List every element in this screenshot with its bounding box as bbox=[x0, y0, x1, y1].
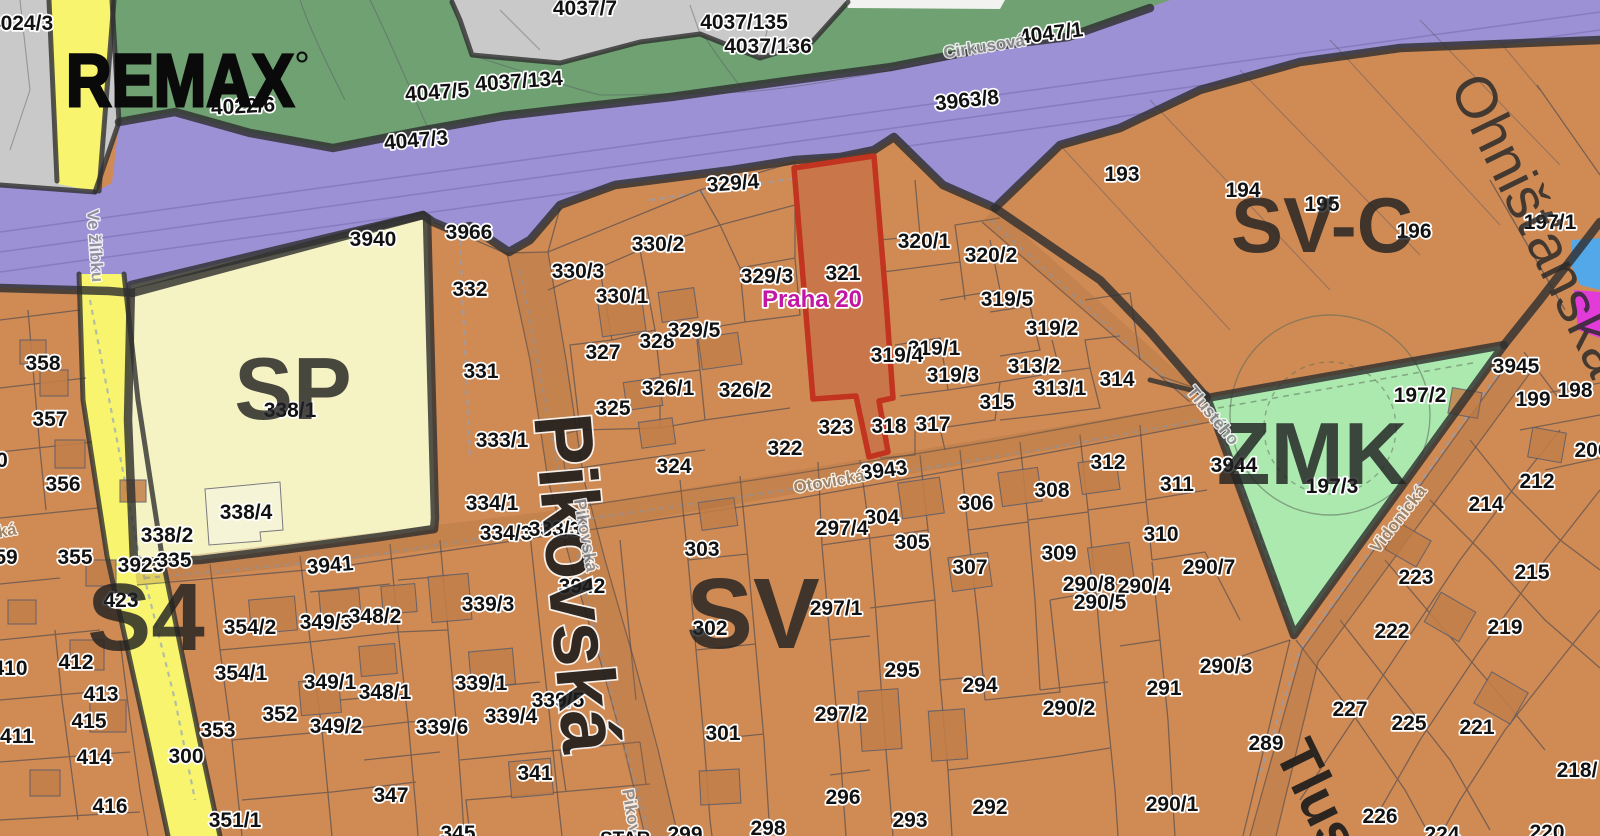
svg-text:339/1: 339/1 bbox=[455, 672, 508, 695]
svg-text:212: 212 bbox=[1519, 470, 1554, 493]
svg-text:329/5: 329/5 bbox=[668, 319, 721, 342]
svg-text:347: 347 bbox=[373, 784, 408, 807]
svg-text:410: 410 bbox=[0, 657, 28, 680]
svg-text:323: 323 bbox=[818, 416, 853, 439]
svg-text:SP: SP bbox=[234, 339, 351, 438]
svg-text:320/1: 320/1 bbox=[898, 230, 951, 253]
svg-text:353: 353 bbox=[200, 719, 235, 742]
svg-text:297/4: 297/4 bbox=[816, 517, 869, 540]
svg-text:315: 315 bbox=[979, 391, 1014, 414]
svg-text:311: 311 bbox=[1160, 473, 1194, 496]
svg-text:REMAX: REMAX bbox=[66, 39, 294, 122]
svg-text:330/1: 330/1 bbox=[596, 285, 649, 308]
svg-text:334/3: 334/3 bbox=[480, 522, 533, 545]
svg-text:330/2: 330/2 bbox=[632, 233, 685, 256]
svg-text:339/3: 339/3 bbox=[462, 593, 515, 616]
svg-text:215: 215 bbox=[1514, 561, 1549, 584]
svg-text:308: 308 bbox=[1034, 479, 1069, 502]
svg-text:227: 227 bbox=[1332, 698, 1367, 721]
svg-text:341: 341 bbox=[517, 762, 552, 785]
svg-text:219: 219 bbox=[1487, 616, 1522, 639]
svg-text:332: 332 bbox=[452, 278, 487, 301]
svg-text:222: 222 bbox=[1374, 620, 1409, 643]
svg-text:290/5: 290/5 bbox=[1074, 591, 1127, 614]
svg-text:348/1: 348/1 bbox=[359, 681, 412, 704]
svg-text:S4: S4 bbox=[87, 564, 204, 671]
svg-text:330/3: 330/3 bbox=[552, 260, 605, 283]
svg-text:199: 199 bbox=[1515, 388, 1550, 411]
svg-text:223: 223 bbox=[1398, 566, 1433, 589]
svg-text:313/1: 313/1 bbox=[1034, 377, 1087, 400]
svg-text:298: 298 bbox=[750, 817, 785, 836]
svg-text:305: 305 bbox=[894, 531, 929, 554]
svg-text:193: 193 bbox=[1104, 163, 1139, 186]
svg-text:304: 304 bbox=[864, 506, 899, 529]
svg-text:313/2: 313/2 bbox=[1008, 355, 1061, 378]
svg-text:4037/136: 4037/136 bbox=[724, 35, 812, 58]
svg-text:300: 300 bbox=[168, 745, 203, 768]
svg-text:Praha 20: Praha 20 bbox=[762, 286, 862, 313]
svg-text:327: 327 bbox=[585, 341, 620, 364]
svg-text:354/1: 354/1 bbox=[215, 662, 268, 685]
svg-text:3941: 3941 bbox=[306, 552, 355, 579]
svg-text:4037/7: 4037/7 bbox=[553, 0, 617, 20]
svg-text:4037/135: 4037/135 bbox=[700, 11, 788, 34]
svg-text:220: 220 bbox=[1529, 821, 1564, 836]
svg-text:357: 357 bbox=[32, 408, 67, 431]
svg-text:309: 309 bbox=[1041, 542, 1076, 565]
svg-text:411: 411 bbox=[0, 725, 34, 748]
svg-text:291: 291 bbox=[1146, 677, 1181, 700]
svg-text:317: 317 bbox=[915, 413, 950, 436]
svg-text:218/: 218/ bbox=[1557, 759, 1598, 782]
svg-text:349/2: 349/2 bbox=[310, 715, 363, 738]
svg-text:314: 314 bbox=[1099, 368, 1134, 391]
svg-text:297/2: 297/2 bbox=[815, 703, 868, 726]
svg-text:ZMK: ZMK bbox=[1217, 404, 1408, 503]
svg-text:351/1: 351/1 bbox=[209, 809, 262, 832]
svg-text:321: 321 bbox=[825, 262, 860, 285]
svg-text:3945: 3945 bbox=[1493, 355, 1540, 378]
svg-text:415: 415 bbox=[71, 710, 106, 733]
svg-text:414: 414 bbox=[76, 746, 111, 769]
svg-text:292: 292 bbox=[972, 796, 1007, 819]
svg-text:290/2: 290/2 bbox=[1043, 697, 1096, 720]
svg-text:322: 322 bbox=[767, 437, 802, 460]
svg-text:331: 331 bbox=[463, 360, 498, 383]
svg-text:413: 413 bbox=[83, 683, 118, 706]
svg-text:290/3: 290/3 bbox=[1200, 655, 1253, 678]
svg-text:295: 295 bbox=[884, 659, 919, 682]
svg-text:319/3: 319/3 bbox=[927, 364, 980, 387]
svg-text:339/4: 339/4 bbox=[485, 705, 538, 728]
svg-text:329/3: 329/3 bbox=[741, 265, 794, 288]
svg-text:310: 310 bbox=[1143, 523, 1178, 546]
svg-text:338/2: 338/2 bbox=[141, 524, 194, 547]
svg-text:349/1: 349/1 bbox=[304, 671, 357, 694]
svg-text:59: 59 bbox=[0, 546, 18, 569]
svg-text:320/2: 320/2 bbox=[965, 244, 1018, 267]
svg-text:339/6: 339/6 bbox=[416, 716, 469, 739]
svg-text:290/1: 290/1 bbox=[1146, 793, 1199, 816]
svg-text:224: 224 bbox=[1424, 823, 1459, 836]
svg-text:326/1: 326/1 bbox=[642, 377, 695, 400]
svg-text:338/4: 338/4 bbox=[220, 501, 273, 524]
svg-text:354/2: 354/2 bbox=[224, 616, 277, 639]
svg-text:326/2: 326/2 bbox=[719, 379, 772, 402]
svg-text:319/5: 319/5 bbox=[981, 288, 1034, 311]
svg-text:319/2: 319/2 bbox=[1026, 317, 1079, 340]
svg-text:312: 312 bbox=[1090, 451, 1125, 474]
svg-text:334/1: 334/1 bbox=[466, 492, 519, 515]
svg-text:324: 324 bbox=[656, 455, 691, 478]
svg-text:352: 352 bbox=[262, 703, 297, 726]
svg-text:329/4: 329/4 bbox=[706, 170, 760, 197]
svg-text:356: 356 bbox=[45, 473, 80, 496]
svg-text:348/2: 348/2 bbox=[349, 605, 402, 628]
svg-text:293: 293 bbox=[892, 809, 927, 832]
svg-text:307: 307 bbox=[952, 556, 987, 579]
svg-text:221: 221 bbox=[1459, 716, 1494, 739]
svg-text:345: 345 bbox=[440, 822, 475, 836]
svg-text:301: 301 bbox=[705, 722, 740, 745]
svg-text:349/3: 349/3 bbox=[300, 611, 353, 634]
svg-text:4024/3: 4024/3 bbox=[0, 12, 53, 35]
svg-text:225: 225 bbox=[1391, 712, 1426, 735]
svg-text:4047/5: 4047/5 bbox=[404, 79, 470, 106]
svg-text:SV-C: SV-C bbox=[1231, 181, 1413, 269]
svg-text:SV: SV bbox=[686, 558, 820, 670]
svg-text:319/4: 319/4 bbox=[871, 344, 924, 367]
svg-text:296: 296 bbox=[825, 786, 860, 809]
svg-text:200: 200 bbox=[1574, 439, 1600, 462]
svg-text:294: 294 bbox=[962, 674, 997, 697]
svg-text:306: 306 bbox=[958, 492, 993, 515]
svg-text:3940: 3940 bbox=[350, 228, 397, 251]
svg-text:318: 318 bbox=[871, 415, 906, 438]
svg-text:290/7: 290/7 bbox=[1183, 556, 1236, 579]
svg-text:358: 358 bbox=[25, 352, 60, 375]
svg-text:214: 214 bbox=[1468, 493, 1503, 516]
svg-text:299: 299 bbox=[667, 823, 702, 836]
svg-text:0: 0 bbox=[0, 449, 8, 472]
svg-text:3966: 3966 bbox=[446, 221, 493, 244]
svg-text:STAR: STAR bbox=[600, 829, 651, 836]
svg-text:416: 416 bbox=[92, 795, 127, 818]
